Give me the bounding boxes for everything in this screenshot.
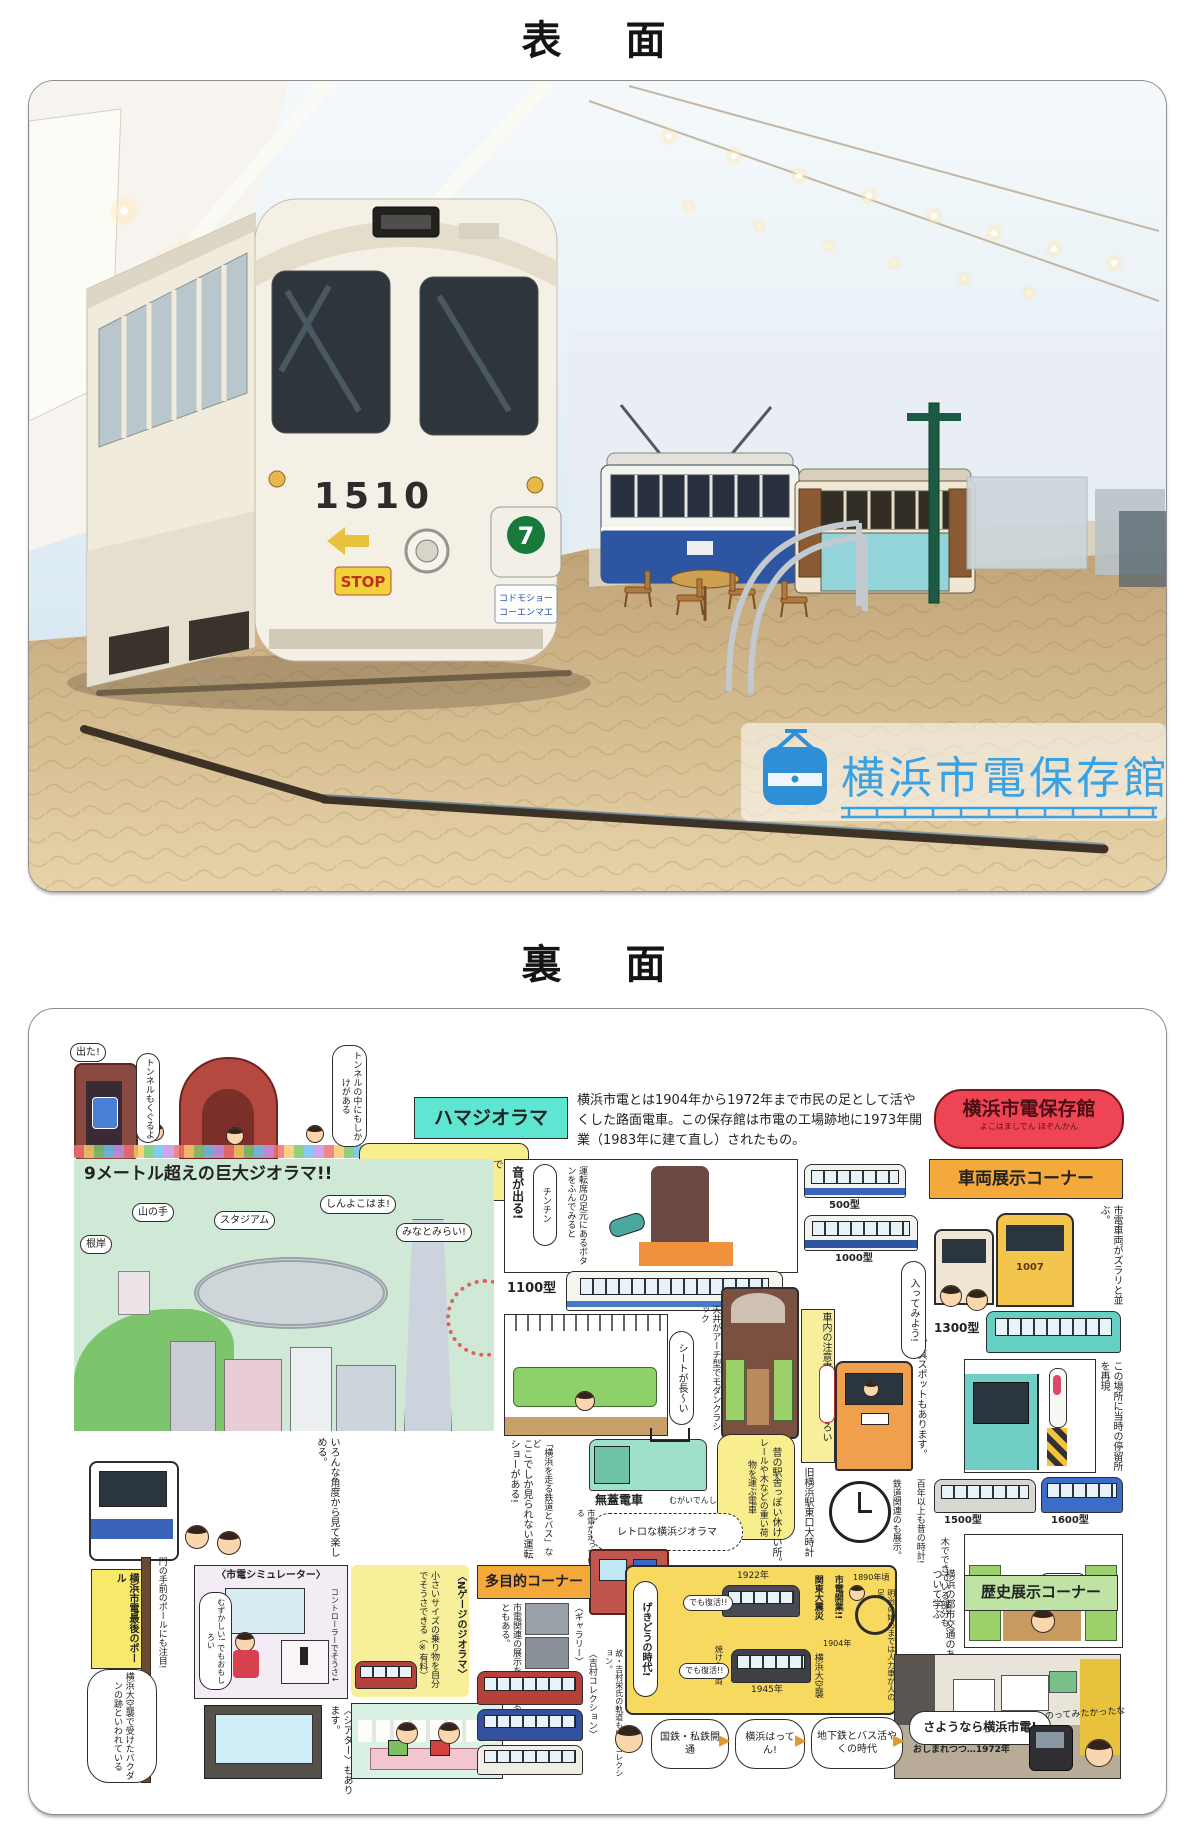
simulator-panel: 〈市電シミュレーター〉 むずかしい! でもおもしろい コントローラーでそうさ↓ [194,1565,348,1699]
green-trolley-pole [929,403,939,603]
label-minatomirai: みなとみらい! [396,1223,472,1242]
kid-face [226,1127,244,1145]
label-last-pole: 横浜市電最後のポール [91,1569,143,1669]
yoshimura-red-train [477,1671,583,1705]
label-yoshimura: 〈吉村コレクション〉 [585,1649,597,1779]
label-simulator: 〈市電シミュレーター〉 [195,1569,347,1582]
label-hamadiorama: ハマジオラマ [414,1097,568,1139]
diorama-title: 9メートル超えの巨大ジオラマ!! [84,1163,332,1185]
label-mugai: 無蓋電車 [595,1493,643,1509]
sim-player [233,1650,259,1678]
orange-floor [639,1242,733,1266]
tram-lineup: 1007 [934,1203,1094,1311]
label-kushu: 横浜大空襲 [811,1653,823,1711]
destination-line1: コドモショー [499,594,553,604]
theater-screen [215,1714,313,1764]
tram-1500 [934,1479,1036,1513]
label-lineup: 市電車両がズラリと並ぶ。 [1097,1205,1123,1317]
label-stop-note: この場所に当時の停留所を再現 [1097,1361,1123,1471]
label-type-500: 500型 [829,1199,860,1212]
theater-wall [204,1705,322,1779]
label-type-1000: 1000型 [835,1252,873,1265]
display-board [967,477,1087,569]
orange-tram-front [835,1361,913,1471]
bubble-tunnel-shikake: トンネルの中にもしかけがある [332,1045,367,1147]
tram-500 [804,1164,906,1198]
timeline-chikatetsu: 地下鉄とバス活やくの時代 [811,1717,903,1769]
tram-1600 [1041,1477,1123,1513]
destination-line2: コーエンマエ [499,608,553,618]
label-type-1100: 1100型 [507,1281,556,1298]
arrow-icon: ▶ [893,1731,905,1751]
kid-face [849,1585,865,1601]
gallery-photo [525,1603,569,1635]
diorama-panel: 9メートル超えの巨大ジオラマ!! 根岸 山の手 スタジアム しんよこはま! みな… [74,1159,494,1431]
back-side-title: 裏 面 [0,932,1199,990]
bubble-chinchin: チンチン [533,1164,557,1246]
far-exhibit [1119,511,1166,587]
label-1922: 1922年 [737,1571,769,1583]
kid-face [615,1725,643,1753]
label-open: 市電開業!! [831,1575,843,1635]
label-yoshimura-note: 故・吉村栄氏の軌道もけいコレクション。 [603,1649,624,1779]
diorama-building [290,1347,332,1431]
label-photospot: 写真スポットもあります。 [914,1339,927,1471]
yoshimura-blue-train [477,1709,583,1741]
controller-box [281,1640,329,1684]
label-stadium: スタジアム [214,1211,275,1230]
bubble-retro-diorama: レトロな横浜ジオラマ [591,1513,743,1551]
kid-face [217,1531,241,1555]
timeline-kokutetsu: 国鉄・私鉄開通 [651,1719,729,1769]
black-tram-front [1029,1725,1073,1771]
kid-face [396,1722,418,1744]
kid-face [940,1285,962,1307]
tram-mugai [589,1439,707,1491]
kid-face [966,1289,988,1311]
route-number: 7 [518,522,535,550]
museum-badge: 横浜市電保存館 よこはましでん ほぞんかん [934,1089,1124,1149]
diorama-ferris-wheel [446,1279,494,1357]
station-clock [829,1481,891,1543]
arrow-icon: ▶ [719,1731,731,1751]
museum-logo-watermark: 横浜市電保存館 [741,723,1166,821]
bubble-tunnel-kuguru: トンネルもくぐるよ [136,1053,160,1143]
label-show-sub: 「横浜を走る鉄道とバス」など [529,1439,552,1564]
simulator-screen [225,1588,305,1634]
back-illustration-panel: 出た! トンネルもくぐるよ トンネルの中にもしかけがある ハマジオラマ 入口から… [28,1008,1167,1815]
arrow-icon: ▶ [795,1731,807,1751]
label-arch-note: 天井がアーチ型でモダンクラシック [697,1305,720,1435]
label-shinyokohama: しんよこはま! [320,1195,396,1214]
museum-photo: 1510 7 コドモショー コーエンマエ STOP [29,81,1166,891]
stop-text: STOP [341,573,386,591]
main-tram-1510: 1510 7 コドモショー コーエンマエ STOP [87,199,561,687]
kid-face [438,1722,460,1744]
label-1904: 1904年 [823,1639,851,1649]
label-1945: 1945年 [751,1685,783,1697]
label-type-1500: 1500型 [944,1514,982,1527]
small-blue-tram-front [89,1461,179,1561]
arch-interior [721,1287,799,1439]
diorama-landmark-tower [404,1219,452,1431]
tram-1945 [731,1649,811,1683]
kid-face [235,1632,255,1652]
gekido-panel: げきどうの時代! 1922年 でも復活!! 焼けた車両 1945年 でも復活!!… [625,1565,897,1715]
bubble-fukkatsu-2: でも復活!! [679,1663,729,1679]
label-meiji: 明治の始めまでは人力車が人の足 [875,1589,896,1705]
bubble-sim-hard: むずかしい! でもおもしろい [199,1592,232,1690]
label-gekido: げきどうの時代! [633,1581,658,1697]
tram-number: 1510 [314,476,434,517]
stepping-foot [607,1211,647,1239]
label-car-1007: 1007 [1016,1261,1044,1274]
mini-tram-in-tunnel [92,1097,118,1129]
museum-badge-title: 横浜市電保存館 [936,1097,1122,1122]
label-multi-corner: 多目的コーナー [477,1565,591,1599]
bell-button-panel: 音が出る! チンチン 運転席の足元にあるボタンをふんでみると [504,1159,798,1273]
timeline-1972: おしまれつつ…1972年 [913,1745,1010,1757]
pamphlet-scan-sheet: 表 面 [0,0,1199,1828]
label-shinsai: 関東大震災 [811,1575,823,1649]
gallery-photo [525,1637,569,1669]
diorama-building [170,1341,216,1431]
intro-text: 横浜市電とは1904年から1972年まで市民の足として活やくした路面電車。この保… [577,1091,927,1163]
front-photo-panel: 1510 7 コドモショー コーエンマエ STOP [28,80,1167,892]
label-ngauge: 〈Nゲージのジオラマ〉 [454,1571,467,1693]
long-seat-interior [504,1314,668,1436]
diorama-church [118,1271,150,1315]
diorama-stadium [194,1257,388,1329]
label-yamanote: 山の手 [132,1203,174,1222]
bubble-fukkatsu-1: でも復活!! [683,1595,733,1611]
tram-stop-pole [819,1365,835,1423]
label-type-1600: 1600型 [1051,1514,1089,1527]
stop-recreation-scene [964,1359,1096,1473]
kid-face [575,1391,595,1411]
label-negishi: 根岸 [80,1235,112,1254]
diorama-building [224,1359,282,1431]
museum-logo-text: 横浜市電保存館 [841,753,1166,804]
label-type-1300: 1300型 [934,1321,979,1337]
label-vehicles-corner: 車両展示コーナー [929,1159,1123,1199]
label-theater: 〈シアター〉もあります。 [327,1705,353,1801]
front-side-title: 表 面 [0,8,1199,66]
bubble-seat: シートが長〜い [669,1331,694,1425]
diorama-building [336,1365,396,1431]
label-sound: 音が出る! [509,1166,525,1266]
ngauge-panel: 〈Nゲージのジオラマ〉 小さいサイズの乗り物を自分でそうさできる（※有料） [351,1565,469,1697]
label-1890: 1890年頃 [853,1573,889,1583]
label-button-note: 運転席の足元にあるボタンをふんでみると [561,1166,587,1266]
pole-crossarm [907,413,961,421]
bubble-bomb: 横浜大空襲で受けたバクダンの跡といわれている [87,1669,157,1783]
kid-face [1085,1739,1113,1767]
tram-1300 [986,1311,1121,1353]
label-pole-note: 門の手前のポールにも注目! [155,1557,167,1689]
diorama-caption: いろんな角度から見て楽しめる。 [314,1437,340,1557]
tram-1000 [804,1215,918,1251]
label-controller: コントローラーでそうさ↓ [329,1588,339,1688]
label-history-corner: 歴史展示コーナー [964,1575,1118,1611]
tram-1922 [722,1585,800,1617]
yoshimura-white-train [477,1745,583,1775]
bubble-enter: 入ってみよう! [901,1261,926,1359]
kid-face [306,1125,324,1143]
museum-badge-kana: よこはましでん ほぞんかん [936,1122,1122,1132]
kid-face [1031,1609,1055,1633]
ngauge-red-train [355,1661,417,1689]
bubble-deta: 出た! [70,1043,106,1062]
kid-driver [863,1381,879,1397]
kid-face [185,1525,209,1549]
